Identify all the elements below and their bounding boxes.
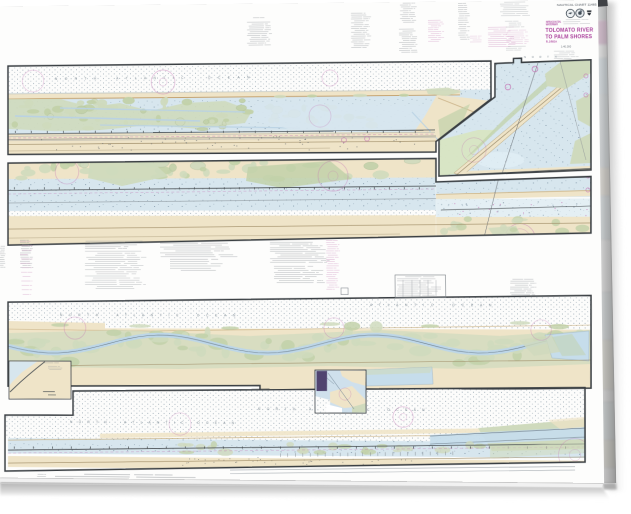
svg-text:1:40,000: 1:40,000 bbox=[561, 45, 572, 48]
svg-text:NAUTICAL CHART 11485: NAUTICAL CHART 11485 bbox=[557, 3, 597, 8]
svg-text:INTRACOASTAL: INTRACOASTAL bbox=[546, 21, 562, 24]
svg-text:N O R T H A T L A N T I C: N O R T H A T L A N T I C O C E A N bbox=[60, 313, 238, 318]
svg-text:WATERWAY: WATERWAY bbox=[546, 23, 559, 26]
svg-text:N O R T H: N O R T H bbox=[524, 55, 559, 59]
svg-text:FLORIDA: FLORIDA bbox=[546, 39, 558, 43]
svg-text:A T L A N T I C O C E A N: A T L A N T I C O C E A N bbox=[370, 303, 494, 307]
